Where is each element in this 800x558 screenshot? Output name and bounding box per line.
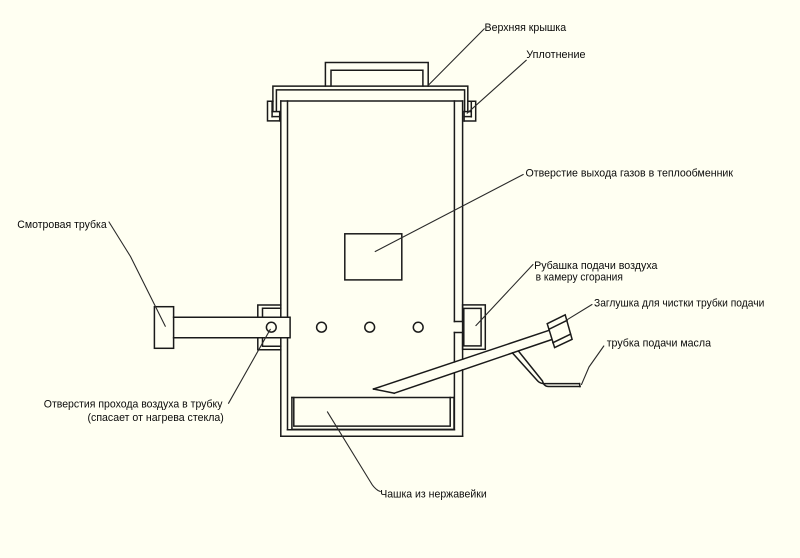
svg-text:трубка подачи масла: трубка подачи масла [607, 337, 712, 349]
svg-text:в камеру сгорания: в камеру сгорания [536, 271, 623, 283]
svg-text:Рубашка подачи воздуха: Рубашка подачи воздуха [534, 260, 658, 272]
svg-text:(спасает от нагрева стекла): (спасает от нагрева стекла) [88, 412, 225, 424]
svg-text:Верхняя крышка: Верхняя крышка [485, 22, 567, 34]
svg-text:Отверстия прохода воздуха в тр: Отверстия прохода воздуха в трубку [44, 399, 223, 411]
svg-text:Заглушка для чистки трубки под: Заглушка для чистки трубки подачи [594, 298, 764, 310]
svg-text:Смотровая трубка: Смотровая трубка [17, 219, 107, 231]
svg-text:Чашка из нержавейки: Чашка из нержавейки [380, 488, 487, 500]
svg-text:Уплотнение: Уплотнение [526, 49, 585, 61]
svg-text:Отверстие выхода газов в тепло: Отверстие выхода газов в теплообменник [526, 168, 734, 180]
